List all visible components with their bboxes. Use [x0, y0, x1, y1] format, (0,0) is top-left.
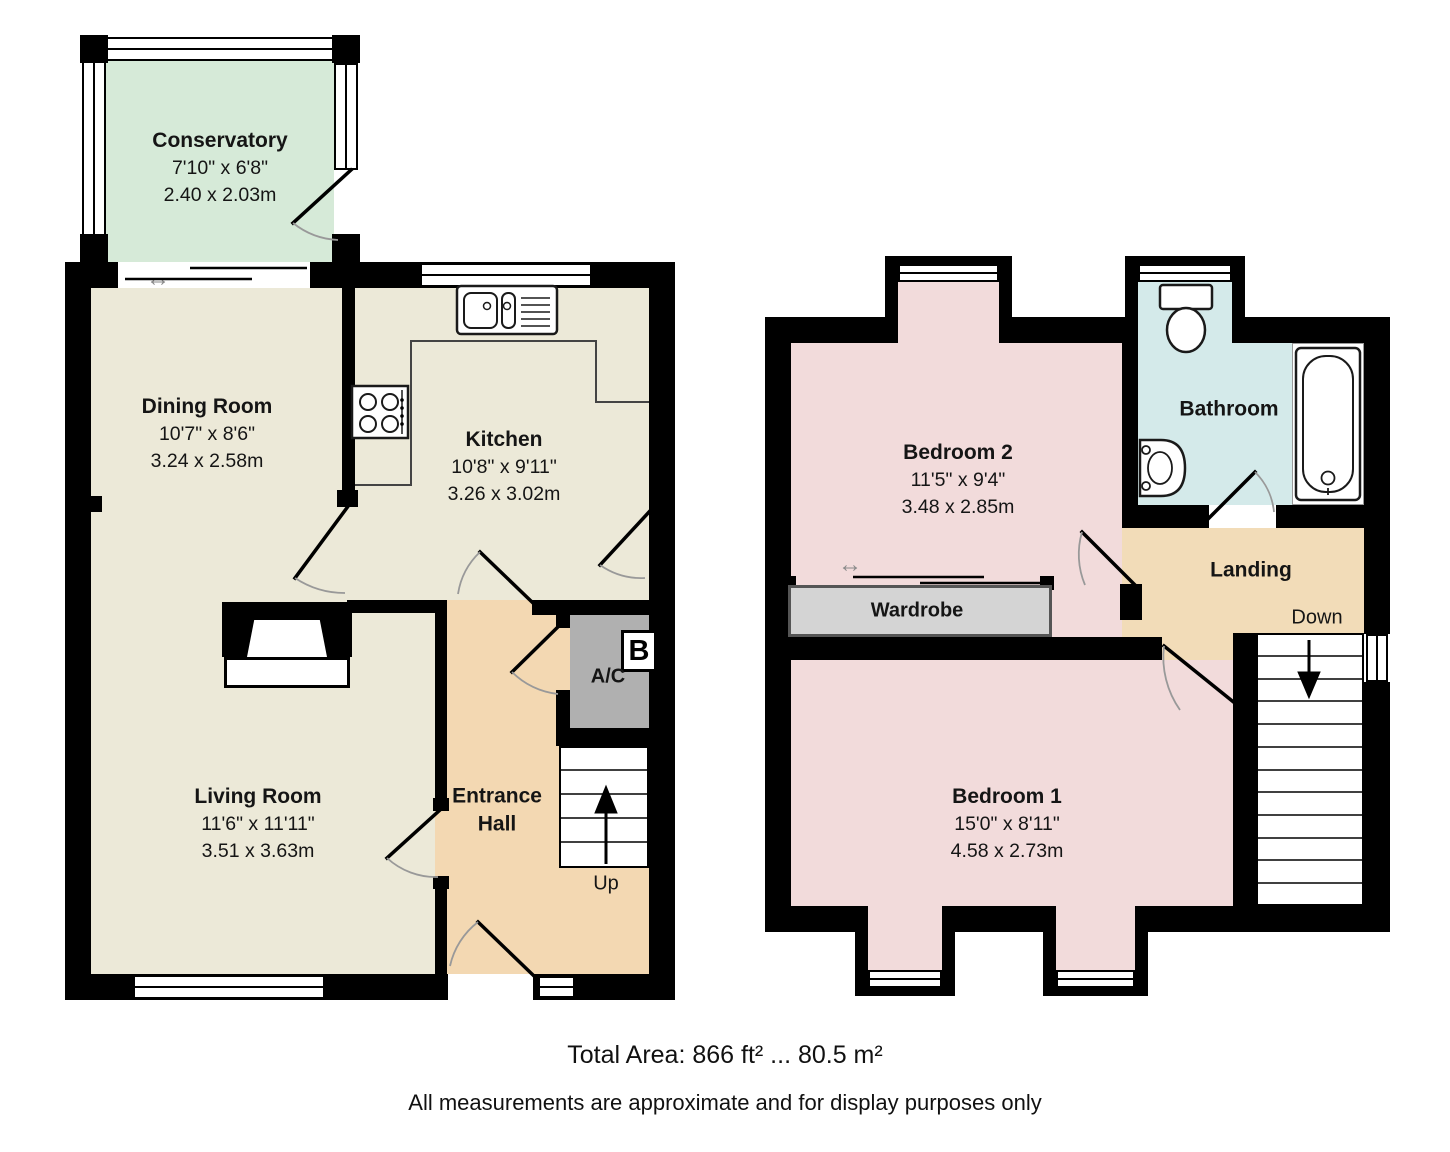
bay-wall: [942, 906, 955, 996]
landing-corner-floor: [1122, 620, 1142, 637]
bay-wall: [999, 256, 1012, 343]
conservatory-window-right: [334, 63, 358, 170]
wall-left: [65, 262, 91, 1000]
conservatory-window-left: [82, 61, 106, 236]
bedroom2-bay-window: [898, 264, 999, 282]
disclaimer-text: All measurements are approximate and for…: [0, 1090, 1450, 1116]
label-down: Down: [1291, 604, 1342, 632]
wall-bedroom2-bathroom: [1122, 343, 1138, 506]
wall-right-lower: [1364, 682, 1390, 932]
bay-wall: [885, 256, 898, 343]
wall-stub-dining-living: [91, 496, 102, 512]
wall-ac-bottom: [556, 728, 649, 746]
bay-wall: [1125, 256, 1138, 343]
fireplace-opening: [247, 620, 327, 657]
label-up: Up: [593, 870, 619, 898]
living-room-window: [133, 975, 325, 999]
wall-right-upper: [1364, 317, 1390, 634]
bay-wall: [1232, 256, 1245, 343]
room-label-conservatory: Conservatory 7'10" x 6'8" 2.40 x 2.03m: [152, 127, 287, 210]
wall-post: [1120, 584, 1142, 620]
wall-bathroom-landing-left: [1122, 505, 1209, 528]
label-ac: A/C: [591, 663, 625, 691]
bathroom-doorway-floor: [1209, 505, 1276, 528]
bay-wall-bottom: [855, 988, 955, 996]
bedroom1-bay-floor: [868, 906, 942, 970]
conservatory-post: [80, 234, 108, 262]
room-label-landing: Landing: [1210, 556, 1292, 584]
room-bathroom: [1138, 343, 1292, 505]
bay-wall-top: [885, 256, 1012, 264]
wall-kitchen-hall: [532, 600, 649, 615]
room-label-bedroom2: Bedroom 2 11'5" x 9'4" 3.48 x 2.85m: [902, 439, 1015, 522]
wall-post: [433, 798, 449, 811]
living-doorway-floor: [435, 810, 447, 878]
front-door-opening: [448, 974, 533, 1000]
wall-ac-left-top: [556, 615, 570, 628]
boiler-box: B: [621, 630, 657, 672]
bedroom1-bay-floor: [1056, 906, 1135, 970]
conservatory-post: [332, 35, 360, 63]
bay-wall-bottom: [1043, 988, 1148, 996]
wall-bedroom1-top: [765, 637, 1162, 660]
wall-bottom-seg: [765, 906, 855, 932]
bay-wall-top: [1125, 256, 1245, 264]
room-living-right: [355, 600, 435, 974]
wall-living-hall-top: [347, 600, 447, 613]
room-label-bedroom1: Bedroom 1 15'0" x 8'11" 4.58 x 2.73m: [951, 783, 1064, 866]
stairwell-window: [1366, 634, 1388, 682]
bay-wall: [1043, 906, 1056, 996]
conservatory-post: [332, 234, 360, 262]
wall-bottom-seg: [1148, 906, 1390, 932]
room-label-dining: Dining Room 10'7" x 8'6" 3.24 x 2.58m: [142, 393, 273, 476]
bedroom1-bay-window: [868, 970, 942, 988]
wall-stairs-left: [1233, 633, 1256, 932]
sliding-door-arrow-icon: ↔: [146, 271, 170, 287]
front-door-side-window: [538, 976, 575, 998]
wardrobe-sliding-arrow-icon: ↔: [838, 557, 862, 573]
bathroom-bay-window: [1138, 264, 1232, 282]
label-wardrobe: Wardrobe: [871, 597, 964, 625]
bay-wall: [1135, 906, 1148, 996]
wall-bottom-seg: [955, 906, 1043, 932]
stairs-down: [1256, 633, 1364, 906]
wall-hall-left-lower: [435, 878, 447, 974]
wall-dining-kitchen: [342, 288, 355, 505]
room-label-entrance-hall: Entrance Hall: [452, 783, 542, 838]
room-label-bathroom: Bathroom: [1179, 395, 1278, 423]
total-area-text: Total Area: 866 ft² ... 80.5 m²: [0, 1041, 1450, 1070]
wall-top-seg: [1012, 317, 1125, 343]
room-label-kitchen: Kitchen 10'8" x 9'11" 3.26 x 3.02m: [448, 426, 561, 509]
bathroom-bay-floor: [1138, 282, 1232, 343]
wall-hall-left-upper: [435, 600, 447, 810]
bedroom2-bay-floor: [898, 282, 999, 343]
boiler-label: B: [629, 635, 650, 668]
kitchen-window: [420, 263, 592, 287]
ac-doorway-floor: [556, 626, 570, 692]
bath-niche: [1292, 343, 1364, 505]
wall-bathroom-landing-right: [1276, 505, 1364, 528]
room-label-living: Living Room 11'6" x 11'11" 3.51 x 3.63m: [194, 783, 321, 866]
fireplace-hearth: [224, 657, 350, 688]
bay-wall: [855, 906, 868, 996]
conservatory-window-top: [106, 37, 334, 61]
stairs-up: [559, 746, 649, 868]
bedroom1-doorway-floor: [1162, 637, 1233, 660]
floorplan-canvas: B ↔ Conservatory 7'10" x 6'8" 2.40 x 2.0…: [0, 0, 1450, 1152]
conservatory-post: [80, 35, 108, 63]
wall-post: [337, 490, 358, 507]
bedroom1-bay-window: [1056, 970, 1135, 988]
